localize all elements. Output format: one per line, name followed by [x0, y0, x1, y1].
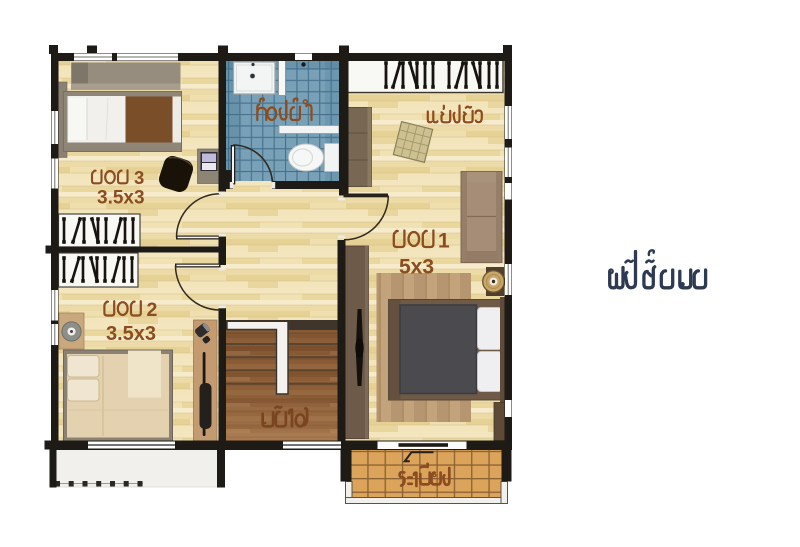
- svg-text:2: 2: [147, 299, 158, 321]
- svg-text:3.5x3: 3.5x3: [97, 188, 145, 209]
- svg-text:5x3: 5x3: [399, 256, 434, 279]
- svg-text:1: 1: [438, 230, 450, 253]
- svg-text:3: 3: [134, 167, 144, 188]
- svg-text:3.5x3: 3.5x3: [106, 323, 156, 345]
